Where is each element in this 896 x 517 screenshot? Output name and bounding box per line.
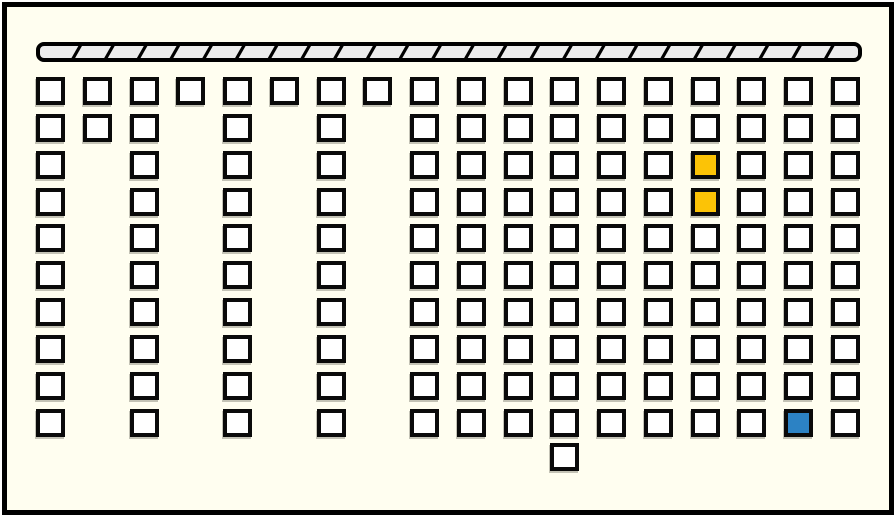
seat[interactable] [644,151,673,179]
seat[interactable] [36,188,65,216]
seat[interactable] [130,224,159,252]
seat[interactable] [737,298,766,326]
seat[interactable] [504,224,533,252]
seat[interactable] [550,224,579,252]
seat[interactable] [550,298,579,326]
seat[interactable] [644,77,673,105]
seat[interactable] [737,372,766,400]
seat[interactable] [457,298,486,326]
seat[interactable] [317,224,346,252]
seat[interactable] [550,151,579,179]
seat[interactable] [550,188,579,216]
seat[interactable] [737,261,766,289]
seat[interactable] [317,372,346,400]
seat[interactable] [457,224,486,252]
seat[interactable] [130,298,159,326]
seat[interactable] [597,261,626,289]
seat[interactable] [831,151,860,179]
seat[interactable] [550,409,579,437]
seat[interactable] [410,261,439,289]
seat[interactable] [784,372,813,400]
seat[interactable] [270,77,299,105]
seat[interactable] [36,409,65,437]
seat[interactable] [130,188,159,216]
seat[interactable] [410,298,439,326]
seat[interactable] [223,188,252,216]
seat[interactable] [831,298,860,326]
seat[interactable] [597,151,626,179]
seat[interactable] [504,298,533,326]
seat[interactable] [130,409,159,437]
seat[interactable] [831,372,860,400]
seat[interactable] [550,261,579,289]
seat[interactable] [223,151,252,179]
seat[interactable] [457,372,486,400]
seat[interactable] [597,77,626,105]
seat[interactable] [737,114,766,142]
seat[interactable] [317,335,346,363]
seat[interactable] [223,372,252,400]
seat[interactable] [504,372,533,400]
seat[interactable] [831,188,860,216]
seat[interactable] [130,335,159,363]
seat[interactable] [317,261,346,289]
seat[interactable] [737,335,766,363]
seat[interactable] [130,151,159,179]
seat[interactable] [410,335,439,363]
seat[interactable] [644,335,673,363]
seat[interactable] [737,188,766,216]
seat[interactable] [831,224,860,252]
seat[interactable] [223,335,252,363]
seat[interactable] [130,372,159,400]
seat[interactable] [691,261,720,289]
seat[interactable] [457,335,486,363]
seat[interactable] [457,114,486,142]
seat-selected-yellow[interactable] [691,151,720,179]
seat[interactable] [83,77,112,105]
seat[interactable] [223,409,252,437]
seat[interactable] [597,224,626,252]
seat[interactable] [36,77,65,105]
seat[interactable] [504,335,533,363]
seat[interactable] [317,409,346,437]
seat[interactable] [784,151,813,179]
seat[interactable] [644,261,673,289]
seat[interactable] [644,114,673,142]
seat[interactable] [691,77,720,105]
seat[interactable] [644,372,673,400]
seat[interactable] [737,151,766,179]
seat[interactable] [504,114,533,142]
seat[interactable] [597,188,626,216]
seat[interactable] [36,372,65,400]
seat-selected-yellow[interactable] [691,188,720,216]
seat[interactable] [317,77,346,105]
seat[interactable] [597,409,626,437]
seat[interactable] [457,188,486,216]
seat[interactable] [36,114,65,142]
seat[interactable] [691,335,720,363]
seat[interactable] [831,77,860,105]
seat[interactable] [317,114,346,142]
seat[interactable] [550,114,579,142]
seat[interactable] [504,188,533,216]
seat[interactable] [550,335,579,363]
seat[interactable] [784,335,813,363]
seat[interactable] [223,114,252,142]
seat[interactable] [130,114,159,142]
seat[interactable] [410,114,439,142]
seat[interactable] [457,77,486,105]
seat[interactable] [737,224,766,252]
seat[interactable] [597,298,626,326]
seat[interactable] [83,114,112,142]
seat[interactable] [410,188,439,216]
seat[interactable] [317,298,346,326]
seat[interactable] [317,188,346,216]
seat[interactable] [36,261,65,289]
seat[interactable] [597,372,626,400]
seat[interactable] [36,298,65,326]
seat[interactable] [597,114,626,142]
seat[interactable] [130,261,159,289]
seat[interactable] [36,335,65,363]
seat[interactable] [410,151,439,179]
seat[interactable] [130,77,159,105]
seating-chart [0,0,896,517]
seat[interactable] [410,409,439,437]
seat[interactable] [784,298,813,326]
seat-selected-blue[interactable] [784,409,813,437]
seat[interactable] [223,261,252,289]
seat[interactable] [457,151,486,179]
seat[interactable] [410,224,439,252]
seat[interactable] [691,224,720,252]
seat[interactable] [831,409,860,437]
seat[interactable] [36,224,65,252]
seat[interactable] [176,77,205,105]
seat-detached[interactable] [550,443,579,471]
seat[interactable] [691,409,720,437]
seat[interactable] [223,224,252,252]
seat[interactable] [831,114,860,142]
seat[interactable] [550,77,579,105]
seat[interactable] [784,261,813,289]
seat[interactable] [223,77,252,105]
seat[interactable] [504,77,533,105]
seat[interactable] [784,77,813,105]
seat[interactable] [691,298,720,326]
seat[interactable] [317,151,346,179]
seat[interactable] [831,261,860,289]
seat[interactable] [36,151,65,179]
seat[interactable] [504,151,533,179]
seat[interactable] [550,372,579,400]
seat[interactable] [691,372,720,400]
seat[interactable] [784,114,813,142]
seat[interactable] [831,335,860,363]
seat[interactable] [410,372,439,400]
seat[interactable] [784,188,813,216]
seat[interactable] [457,261,486,289]
seat[interactable] [644,188,673,216]
seat[interactable] [737,409,766,437]
front-wall-bar [36,42,862,62]
seat[interactable] [691,114,720,142]
seat[interactable] [363,77,392,105]
seat[interactable] [597,335,626,363]
seat[interactable] [504,409,533,437]
seat[interactable] [644,298,673,326]
seat[interactable] [410,77,439,105]
seat[interactable] [737,77,766,105]
seat[interactable] [784,224,813,252]
seat[interactable] [457,409,486,437]
seat[interactable] [644,409,673,437]
seat[interactable] [504,261,533,289]
seat[interactable] [223,298,252,326]
seat[interactable] [644,224,673,252]
